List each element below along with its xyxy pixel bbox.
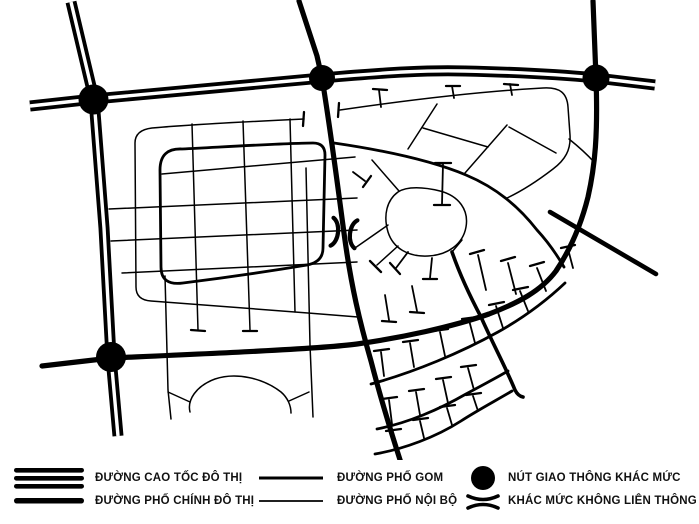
ne-loop-connector-se [452,240,462,252]
nw-grid-vertical-1 [192,124,198,330]
grade-separation-right-arc [349,220,358,248]
legend-label-expressway: ĐƯỜNG CAO TỐC ĐÔ THỊ [95,472,242,484]
ne-up-stub-1-cap [373,89,387,90]
band0-stub-3-cap [470,250,484,254]
band1-stub-3 [440,332,445,356]
band0-stub-1-cap [382,321,396,322]
band0-stub-2 [412,286,417,311]
band2-stub-2-cap [409,389,424,391]
ne-loop-connector-nw [372,160,399,191]
ne-north-street [340,88,570,198]
ne-loop-connector-sw [377,246,398,265]
nw-grid-horizontal-1 [109,198,357,209]
nw-grid-horizontal-2 [111,230,357,241]
legend-label-interchange: NÚT GIAO THÔNG KHÁC MỨC [508,472,681,484]
interchange-junction-north-center [309,65,335,91]
nw-inner-loop-collector [160,143,325,283]
interchange-junction-southwest [96,342,126,372]
grade-separation-legend-icon [466,492,500,512]
band0-stub-5-cap [530,262,544,266]
ne-radial-street-2 [465,125,507,173]
band1-stub-2 [410,343,414,367]
legend-label-collector-street: ĐƯỜNG PHỐ GOM [337,472,443,484]
band0-stub-4-cap [501,257,515,261]
band0-stub-2-cap [410,312,424,313]
band1-stub-1 [381,352,384,376]
band0-stub-3 [478,255,486,290]
expressway-legend-icon [13,468,85,491]
legend-label-internal-street: ĐƯỜNG PHỐ NỘI BỘ [337,495,457,507]
internal-street-legend-icon [257,499,325,503]
band0-stub-1 [385,295,389,320]
nw-grid-vertical-2 [243,121,250,330]
ne-loop-stub-2 [430,258,432,278]
band3-stub-3 [447,408,452,425]
nw-grid-vertical-4 [165,276,171,419]
map-canvas [0,0,699,460]
road-network-diagram: ĐƯỜNG CAO TỐC ĐÔ THỊ ĐƯỜNG PHỐ CHÍNH ĐÔ … [0,0,699,524]
band2-stub-4-cap [461,365,476,367]
ne-dumbbell-street [442,164,443,204]
ne-loop-connector-west [355,225,388,248]
south-arch-link-right [289,392,309,401]
nw-outer-loop-culdesac-cap [303,112,304,126]
ne-radial-street-3 [509,127,556,153]
ne-up-stub-3-cap [504,84,518,85]
band2-stub-3-cap [436,377,451,379]
grade-separation-left-arc [331,218,340,246]
interchange-legend-icon [470,465,496,491]
nw-grid-horizontal-3 [122,262,357,273]
band3-stub-2 [420,421,424,438]
legend-label-main-street: ĐƯỜNG PHỐ CHÍNH ĐÔ THỊ [95,495,254,507]
collector-streets-group [160,143,565,454]
ne-north-street-cap [338,103,339,117]
band1-stub-4 [469,320,475,343]
ne-cross-street [423,128,488,147]
band1-stub-5-cap [489,302,504,305]
nw-grid-vertical-1-cap [191,330,205,331]
interchange-junction-northeast [583,65,610,92]
south-arch-link-left [168,392,190,402]
ne-link-to-main-b [569,139,594,162]
ne-radial-street-1 [408,104,437,149]
band2-stub-1-cap [382,397,397,399]
collector-street-legend-icon [257,475,325,481]
south-arch-street [189,376,291,413]
ne-small-stub [353,172,365,181]
ne-loop-stub-1 [396,252,408,268]
band2-stub-4 [468,368,474,390]
main-street-diagonal-se [550,212,656,274]
band2-stub-3 [443,380,448,403]
band1-stub-2-cap [403,340,418,342]
legend-label-grade-separation: KHÁC MỨC KHÔNG LIÊN THÔNG [508,495,697,507]
band1-stub-1-cap [374,349,389,351]
band3-stub-4 [473,396,478,411]
band1-stub-6-cap [513,287,528,290]
nw-grid-vertical-3 [290,119,295,312]
interchange-junction-northwest [79,85,109,115]
nw-grid-vertical-5 [306,168,313,417]
main-street-legend-icon [13,497,85,505]
band2-stub-2 [416,392,420,415]
